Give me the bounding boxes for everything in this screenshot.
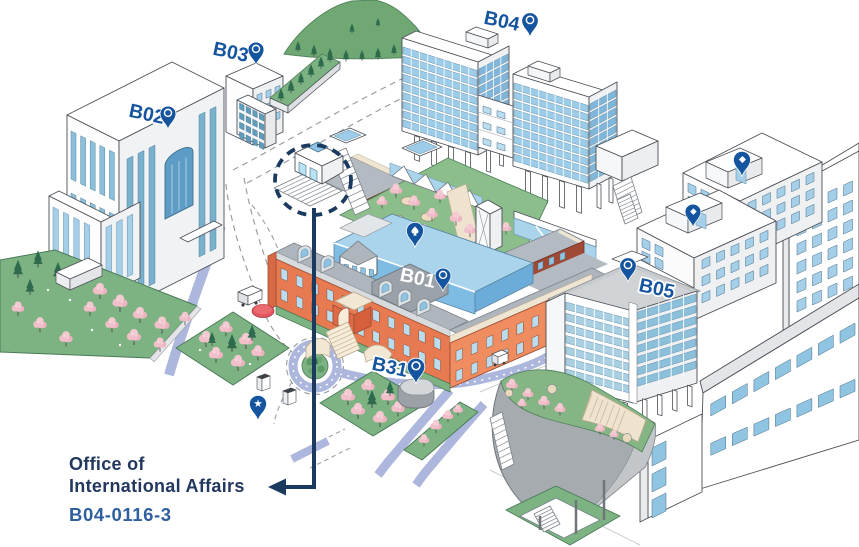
svg-text:Office of: Office of	[69, 454, 145, 474]
svg-text:★: ★	[254, 399, 263, 409]
svg-text:International Affairs: International Affairs	[69, 476, 245, 496]
svg-text:B04-0116-3: B04-0116-3	[69, 504, 172, 525]
